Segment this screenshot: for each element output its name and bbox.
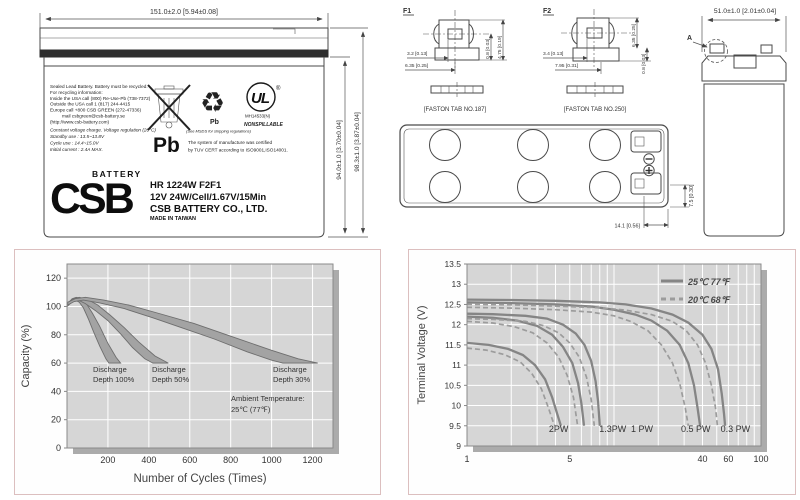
svg-text:400: 400 [141,455,156,465]
annotation-depth-30: Discharge [273,365,307,374]
f2-caption: [FASTON TAB NO.250] [564,107,627,113]
crossed-bin-icon: Pb [148,85,190,157]
svg-text:9: 9 [456,441,461,451]
side-view-drawing: 51.0±1.0 [2.01±0.04] A [683,0,800,247]
f2-dim-0-8: 0.8 [0.03] [641,53,647,74]
made-in-taiwan: MADE IN TAIWAN [150,216,196,222]
f2-dim-3-4: 3.4 [0.13] [543,51,564,57]
annotation-ambient-temp: 25℃ (77℉) [231,405,271,414]
x-axis-title: Number of Cycles (Times) [133,473,266,485]
recycle-text-line: Sealed Lead Battery. Battery must be rec… [50,84,148,89]
side-terminal-bump [710,44,724,53]
svg-text:10.5: 10.5 [444,380,461,390]
svg-text:1200: 1200 [303,455,323,465]
y-axis-title: Capacity (%) [20,325,32,388]
recycle-pb-label: Pb [210,119,219,126]
lid-dark-band [40,50,328,57]
f2-dim-7-95: 7.95 [0.31] [555,63,579,69]
detail-a-label: A [687,35,692,42]
svg-text:12: 12 [452,320,462,330]
svg-text:600: 600 [182,455,197,465]
top-view: 14.1 [0.56] 7.5 [0.30] [400,125,695,230]
svg-text:2PW: 2PW [549,424,569,434]
svg-text:20: 20 [51,415,61,425]
annotation-ambient-temp: Ambient Temperature: [231,394,305,403]
svg-text:0.5 PW: 0.5 PW [681,424,711,434]
svg-text:1 PW: 1 PW [631,424,654,434]
tuv-cert-line: The system of manufacture was certified [188,140,273,145]
cycle-life-chart: 20040060080010001200020406080100120 Capa… [15,250,380,494]
recycle-text-line: Outside the USA call 1 (817) 244-4415 [50,102,131,107]
pb-large-label: Pb [153,134,180,157]
svg-text:60: 60 [723,454,733,464]
front-view-drawing: 151.0±2.0 [5.94±0.08] 94.0±1.0 [3.70±0.0… [0,0,395,247]
recycle-symbol-icon: ♻ Pb (See MSDS for shipping regulations) [186,87,252,134]
terminal-and-top-view-drawing: F1 3.2 [0.13] 6.35 [0.25] 0.8 [0.03] 4.7… [395,0,695,247]
side-body [704,84,784,236]
model-number: HR 1224W F2F1 [150,180,222,191]
recycle-text-line: Europe call +800 CSB GREEN (272-47336) [50,108,142,113]
svg-text:1: 1 [464,454,469,464]
svg-text:1.3PW: 1.3PW [599,424,627,434]
spec-line: 12V 24W/Cell/1.67V/15Min [150,192,266,203]
ul-file-number: MH14533(N) [245,114,271,119]
f1-dim-4-75: 4.75 [0.19] [497,35,503,59]
csb-logo: CSB [50,175,134,223]
f1-title: F1 [403,8,411,15]
legend-label-25c: 25℃ 77℉ [687,277,731,287]
minus-polarity-icon [644,154,654,164]
side-width-dimension: 51.0±1.0 [2.01±0.04] [714,8,776,15]
svg-text:9.5: 9.5 [449,421,461,431]
ul-registered-mark: ® [276,85,281,92]
top-view-dim-14-1: 14.1 [0.56] [615,224,641,230]
annotation-depth-30: Depth 30% [273,375,310,384]
recycle-text-line: For recycling information: [50,90,103,95]
company-name: CSB BATTERY CO., LTD. [150,204,268,215]
charge-text-line: Initial current : 2.4A MAX. [50,147,103,152]
svg-text:100: 100 [46,301,61,311]
negative-terminal-tab [631,131,661,152]
svg-text:0.3 PW: 0.3 PW [721,424,751,434]
svg-text:11.5: 11.5 [445,340,461,350]
tuv-cert-line: by TUV CERT according to ISO9001,ISO1400… [188,148,288,153]
svg-text:13: 13 [452,279,462,289]
y-axis-title: Terminal Voltage (V) [416,305,428,404]
annotation-depth-50: Depth 50% [152,375,189,384]
svg-text:40: 40 [697,454,707,464]
svg-text:40: 40 [51,386,61,396]
legend-label-20c: 20℃ 68℉ [687,295,731,305]
svg-text:12.5: 12.5 [444,299,461,309]
terminal-f2-detail: F2 3.4 [0.13] 7.95 [0.31] 6.35 [0.25] 0.… [543,8,651,113]
side-center-block [734,55,756,68]
recycle-text-line: Inside the USA call (800) Re-Use-Pb (738… [50,96,151,101]
f1-dim-6-35: 6.35 [0.25] [405,63,429,69]
svg-text:11: 11 [452,360,461,370]
terminal-f1-detail: F1 3.2 [0.13] 6.35 [0.25] 0.8 [0.03] 4.7… [403,8,507,113]
svg-text:100: 100 [753,454,768,464]
svg-text:60: 60 [51,358,61,368]
ul-letters: UL [251,90,270,107]
ul-mark-icon: UL ® MH14533(N) NONSPILLABLE [244,83,284,128]
svg-text:200: 200 [100,455,115,465]
recycle-text-line: mail csbgreen@csb-battery.se [62,114,125,119]
side-terminal-bump [761,45,772,53]
svg-text:13.5: 13.5 [444,259,461,269]
height-dimension-94: 94.0±1.0 [3.70±0.04] [336,120,343,180]
svg-text:120: 120 [46,273,61,283]
datasheet-page: { "colors": { "accent_border": "#dcbfbf"… [0,0,800,500]
svg-text:80: 80 [51,330,61,340]
width-dimension-label: 151.0±2.0 [5.94±0.08] [150,9,218,16]
annotation-depth-100: Discharge [93,365,127,374]
cycle-life-chart-panel: 20040060080010001200020406080100120 Capa… [14,249,381,495]
recycle-text-line: (http://www.csb-battery.com) [50,119,109,124]
annotation-depth-100: Depth 100% [93,375,135,384]
gridlines [467,264,761,446]
terminal-notch [273,29,295,34]
annotation-depth-50: Discharge [152,365,186,374]
f1-caption: [FASTON TAB NO.187] [424,107,487,113]
svg-text:0: 0 [56,443,61,453]
discharge-voltage-chart-panel: 99.51010.51111.51212.51313.5154060100 2P… [408,249,796,495]
svg-text:10: 10 [452,401,462,411]
msds-note: (See MSDS for shipping regulations) [186,129,252,134]
charge-text-line: Cycle use : 14.4~15.0V [50,141,99,146]
f2-dim-6-35: 6.35 [0.25] [631,23,637,47]
charge-text-line: Constant voltage charge. Voltage regulat… [50,128,156,133]
svg-text:1000: 1000 [262,455,282,465]
svg-text:5: 5 [567,454,572,464]
svg-text:800: 800 [223,455,238,465]
f1-dim-0-8: 0.8 [0.03] [485,38,491,59]
plus-polarity-icon [644,165,654,175]
discharge-voltage-chart: 99.51010.51111.51212.51313.5154060100 2P… [409,250,795,494]
battery-wordmark: BATTERY [92,169,142,179]
positive-terminal-tab [631,173,661,194]
charge-text-line: Standby use : 13.5~13.8V [50,134,105,139]
f2-title: F2 [543,8,551,15]
nonspillable-label: NONSPILLABLE [244,122,284,128]
height-dimension-98: 98.3±1.0 [3.87±0.04] [354,112,361,172]
f1-dim-3-2: 3.2 [0.13] [407,51,428,57]
recycle-glyph: ♻ [200,87,225,118]
